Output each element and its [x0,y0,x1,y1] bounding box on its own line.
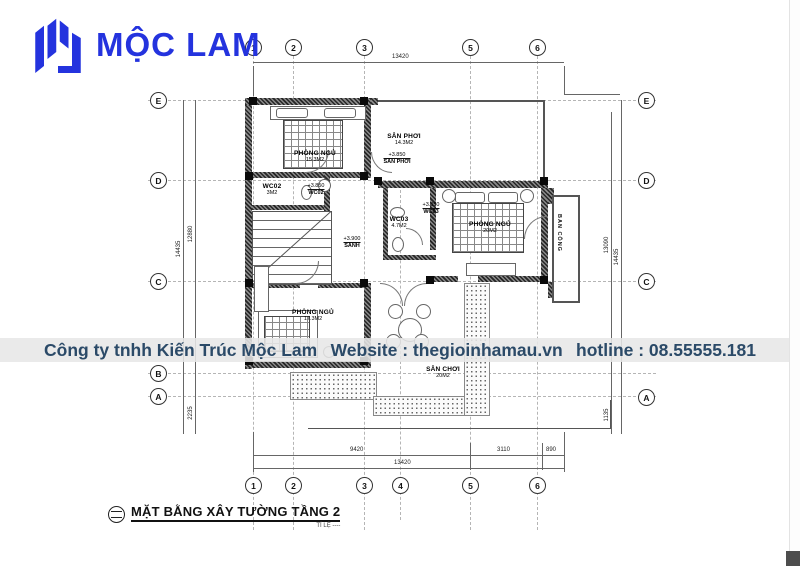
column [540,276,548,284]
terrace-rail [378,100,545,102]
logo-mark-icon [30,16,86,74]
patio-chair [416,304,431,319]
axis-right-C: C [638,273,655,290]
wall [383,255,436,260]
roof-edge-line [610,400,611,429]
company-logo: MỘC LAM [30,16,261,74]
wall [478,276,547,282]
wall [245,361,371,368]
axis-right-D: D [638,172,655,189]
dim-line-left-outer [183,100,184,434]
dim-line-bottom-segments [253,455,564,456]
dresser [466,263,516,276]
level-marker-wc02: +3.850 WC02 [308,183,325,196]
column [360,97,368,105]
column [245,279,253,287]
dim-ext [564,432,565,472]
column [426,276,434,284]
dim-ext [253,432,254,472]
column [426,177,434,185]
axis-left-C: C [150,273,167,290]
level-marker-laundry: +3.850 SÂN PHƠI [383,152,410,165]
terrace-rail [543,100,545,183]
axis-top-6: 6 [529,39,546,56]
watermark-band: Công ty tnhh Kiến Trúc Mộc Lam Website :… [0,338,800,362]
door-arc [404,283,427,306]
patio-chair [388,304,403,319]
pillow [488,192,518,203]
axis-top-5: 5 [462,39,479,56]
wall [245,98,252,369]
axis-bottom-5: 5 [462,477,479,494]
watermark-website: Website : thegioinhamau.vn [331,340,563,361]
axis-bottom-6: 6 [529,477,546,494]
dim-bottom-total: 13420 [394,460,411,466]
column [360,279,368,287]
nightstand [442,189,456,203]
axis-left-E: E [150,92,167,109]
axis-right-E: E [638,92,655,109]
dim-left-bottom: 2235 [188,396,194,430]
wall [430,276,458,282]
axis-left-D: D [150,172,167,189]
dim-seg-3: 890 [546,447,556,453]
scroll-corner[interactable] [786,551,800,566]
door-arc [406,228,423,245]
dim-line-right-outer [621,100,622,434]
dim-right-outer: 14435 [614,240,620,274]
wall [383,188,388,260]
detail-marker-icon [108,506,125,523]
level-marker-hall: +3.900 SẢNH [344,236,361,249]
room-label-bedroom-bl: PHÒNG NGỦ 17.3M2 [292,309,334,322]
room-label-bedroom-r: PHÒNG NGỦ 20M2 [469,221,511,234]
axis-right-A: A [638,389,655,406]
column [249,97,257,105]
drawing-scale: TỈ LỆ ---- [131,523,340,529]
logo-text: MỘC LAM [96,26,261,64]
axis-left-B: B [150,365,167,382]
room-label-laundry: SÂN PHƠI 14.3M2 [387,133,421,146]
watermark-company: Công ty tnhh Kiến Trúc Mộc Lam [44,340,317,361]
dim-left-inner: 12880 [188,217,194,251]
dim-line-top [253,62,564,63]
axis-bottom-4: 4 [392,477,409,494]
dim-right-inner: 13090 [604,228,610,262]
dim-ext [564,94,620,95]
dim-line-bottom-total [253,468,564,469]
wall [252,205,330,210]
axis-top-3: 3 [356,39,373,56]
scrollbar-track[interactable] [789,0,800,566]
axis-bottom-3: 3 [356,477,373,494]
pillow [455,192,485,203]
column [360,172,368,180]
column [245,172,253,180]
grid-line-6 [537,56,538,530]
wall [378,181,548,188]
wardrobe [254,266,269,312]
room-label-balcony: BAN CÔNG [556,214,562,274]
drawing-title-block: MẶT BẰNG XÂY TƯỜNG TẦNG 2 TỈ LỆ ---- [108,504,340,529]
drawing-title: MẶT BẰNG XÂY TƯỜNG TẦNG 2 [131,504,340,522]
axis-left-A: A [150,388,167,405]
column [374,177,382,185]
dim-line-right-bottom [611,402,612,434]
dim-ext [564,66,565,94]
dim-ext [470,443,471,470]
watermark-hotline: hotline : 08.55555.181 [576,340,756,361]
dim-seg-1: 9420 [350,447,363,453]
terrace-hatch [290,372,377,400]
room-label-wc03: WC03 4.7M2 [390,216,409,229]
toilet [392,237,404,252]
grid-line-B [148,373,656,374]
pillow [276,108,308,118]
door-arc [524,216,547,239]
dim-right-bottom: 1135 [604,398,610,432]
dim-top-total: 13420 [392,54,409,60]
room-label-wc02a: WC02 3M2 [263,183,282,196]
level-marker-wc03: +3.850 WC03 [423,202,440,215]
room-label-bedroom-tl: PHÒNG NGỦ 15.3M2 [294,150,336,163]
room-label-playground: SÂN CHƠI 20M2 [426,366,460,379]
dim-line-left-bottom [195,396,196,434]
dim-seg-2: 3110 [497,447,510,453]
roof-edge-line [308,428,611,429]
terrace-hatch [373,396,471,416]
wall [430,188,436,250]
nightstand [520,189,534,203]
axis-top-2: 2 [285,39,302,56]
axis-bottom-2: 2 [285,477,302,494]
dim-left-outer: 14435 [176,232,182,266]
column [540,177,548,185]
wall [245,98,378,105]
axis-bottom-1: 1 [245,477,262,494]
pillow [324,108,356,118]
floor-plan-page: MỘC LAM 1 2 3 5 6 1 2 3 4 5 6 E D C B A … [0,0,800,566]
dim-ext [542,443,543,470]
